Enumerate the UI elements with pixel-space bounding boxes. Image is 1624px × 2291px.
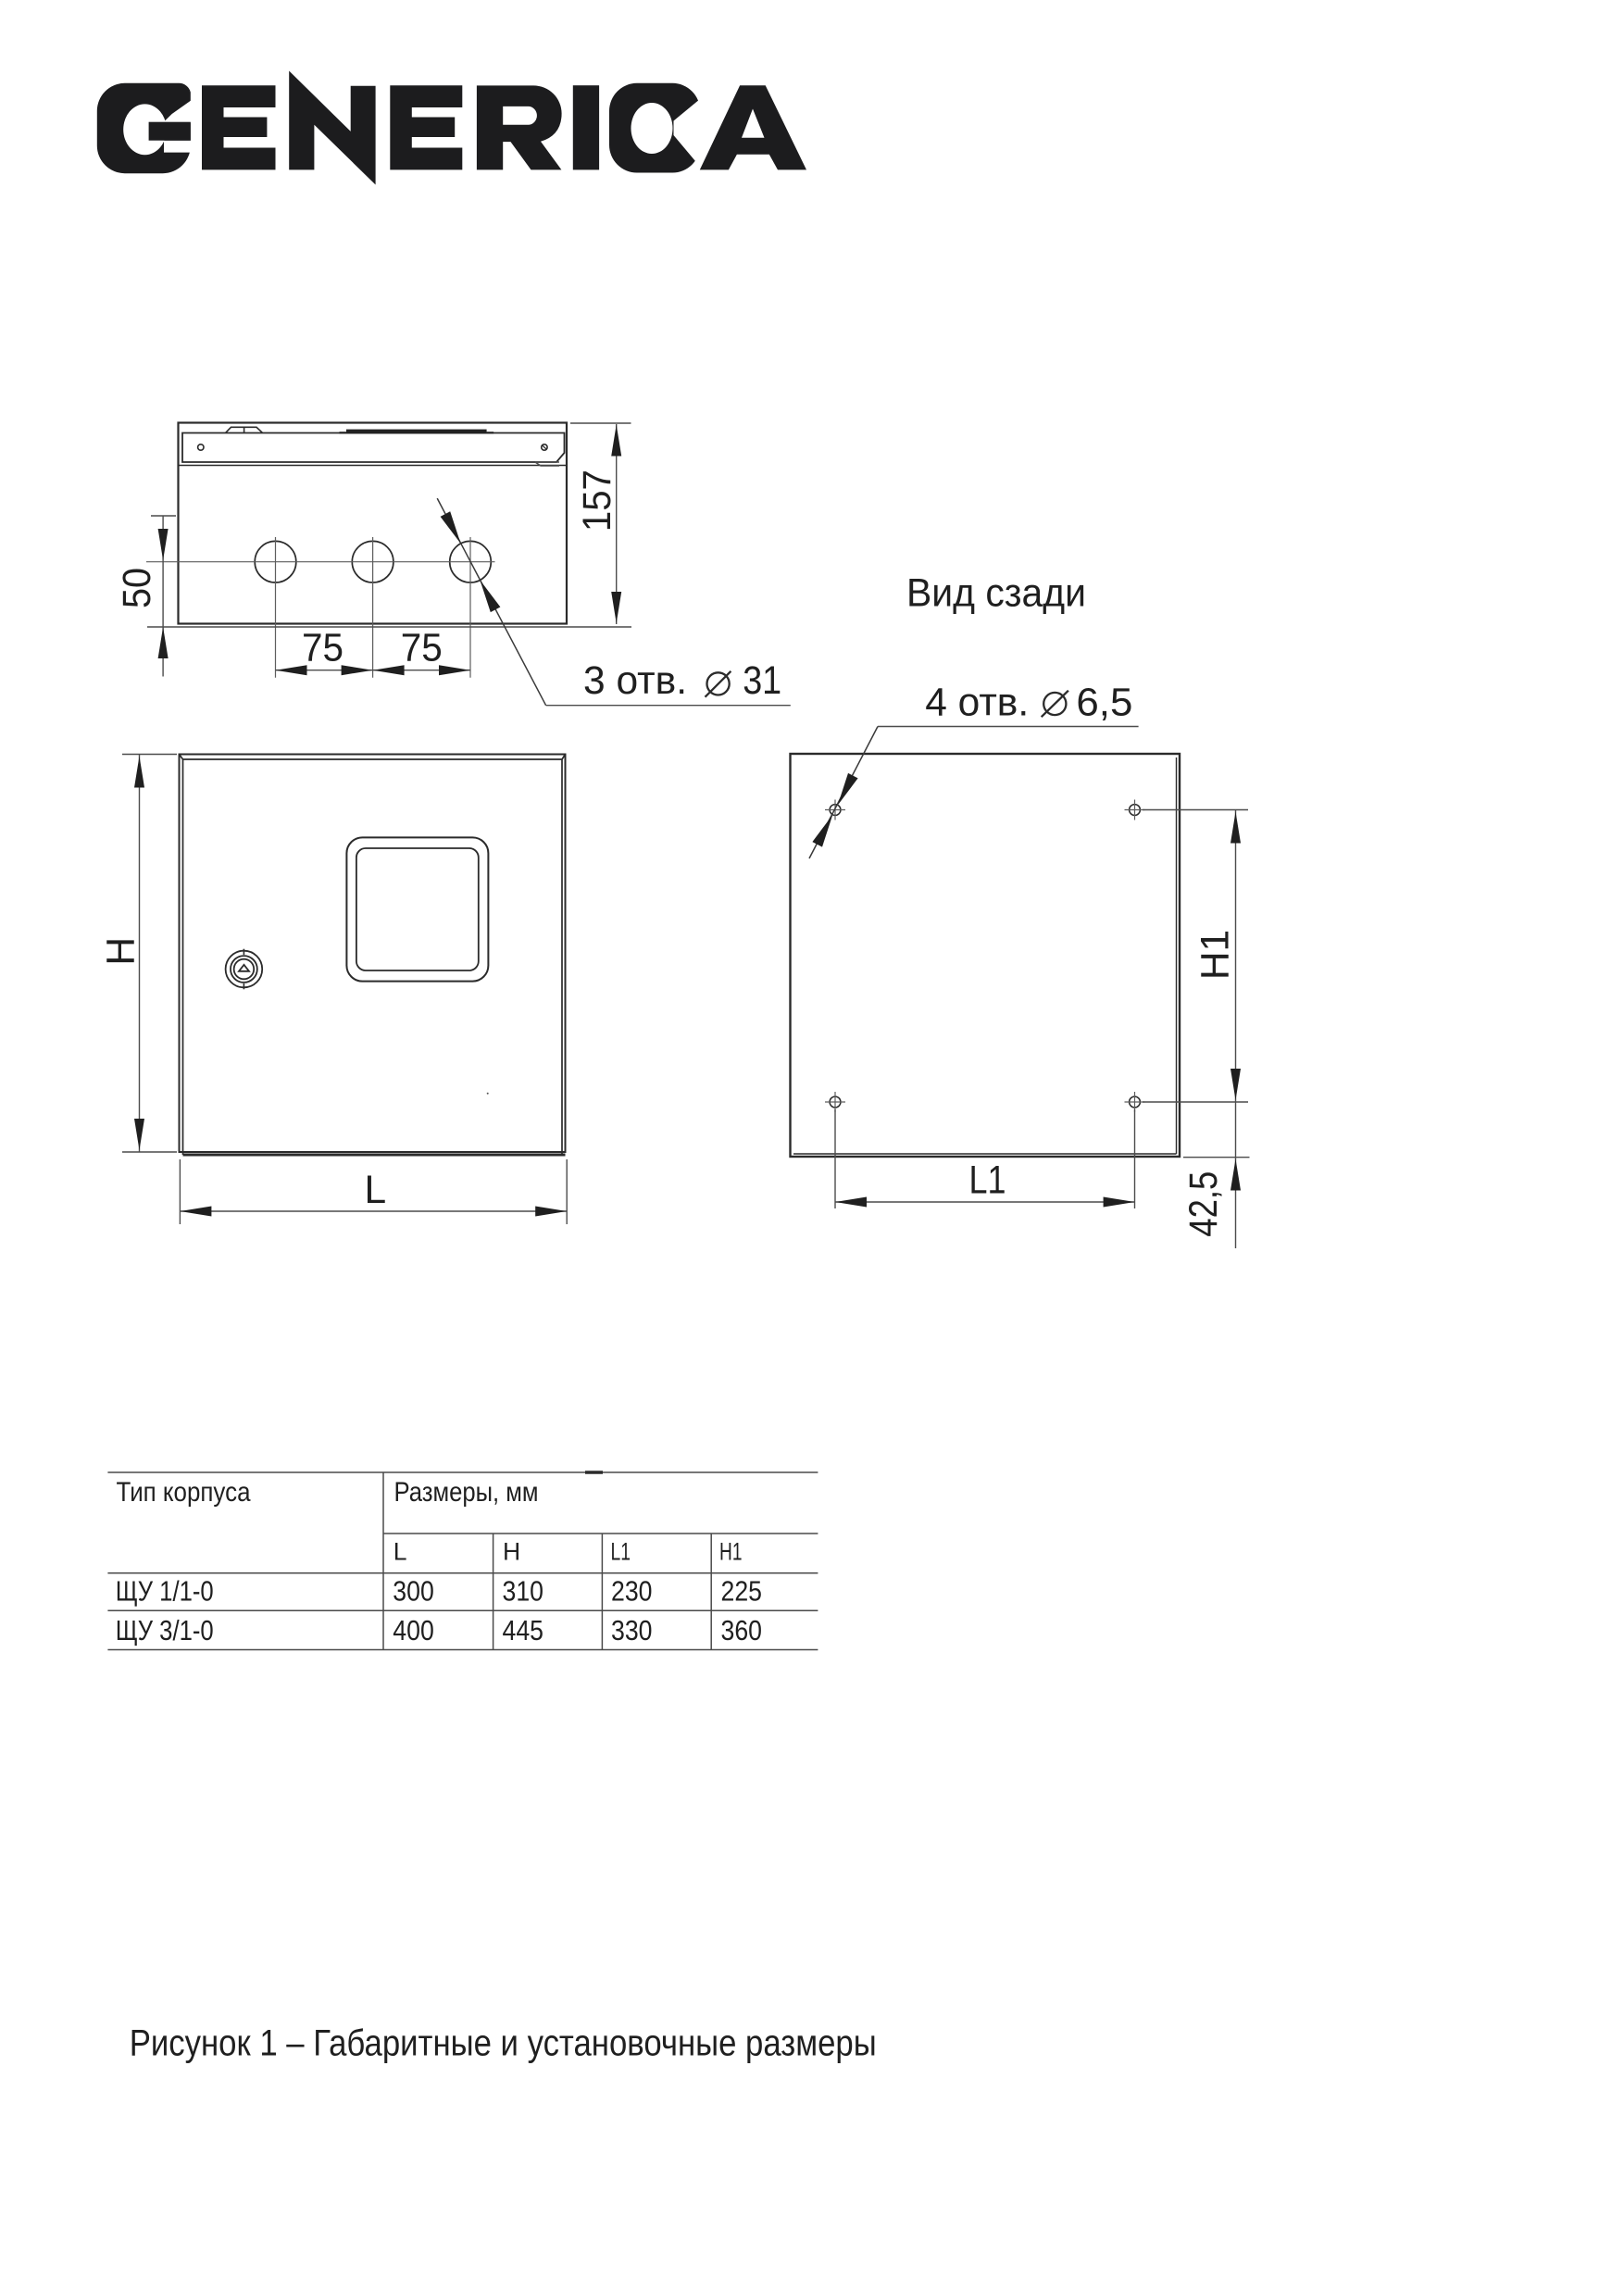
svg-text:300: 300 [393,1575,434,1608]
svg-text:3 отв.: 3 отв. [583,659,687,703]
svg-text:330: 330 [611,1614,653,1646]
svg-text:ЩУ 1/1-0: ЩУ 1/1-0 [116,1575,214,1608]
svg-text:225: 225 [721,1575,763,1608]
svg-text:42,5: 42,5 [1182,1171,1226,1237]
svg-text:H: H [503,1538,520,1566]
svg-text:Вид сзади: Вид сзади [906,572,1086,616]
svg-text:230: 230 [611,1575,653,1608]
svg-text:157: 157 [576,469,619,532]
svg-text:ЩУ 3/1-0: ЩУ 3/1-0 [116,1614,214,1646]
svg-text:Тип корпуса: Тип корпуса [117,1477,251,1508]
svg-text:Рисунок 1 – Габаритные и устан: Рисунок 1 – Габаритные и установочные ра… [130,2023,877,2064]
svg-text:H1: H1 [1194,930,1238,980]
svg-text:75: 75 [401,627,443,670]
svg-text:L1: L1 [969,1159,1006,1203]
svg-text:400: 400 [393,1614,434,1646]
svg-text:Размеры, мм: Размеры, мм [394,1477,539,1508]
svg-text:H1: H1 [719,1538,743,1566]
svg-text:360: 360 [721,1614,763,1646]
svg-text:310: 310 [503,1575,544,1608]
svg-text:L: L [394,1538,407,1566]
svg-text:50: 50 [116,568,159,608]
svg-text:H: H [100,937,144,966]
svg-text:445: 445 [503,1614,544,1646]
svg-text:L1: L1 [611,1538,631,1566]
svg-text:75: 75 [302,627,344,670]
svg-text:4 отв.: 4 отв. [925,682,1029,725]
svg-text:L: L [364,1169,386,1212]
svg-text:6,5: 6,5 [1076,682,1132,725]
svg-text:31: 31 [743,659,781,703]
